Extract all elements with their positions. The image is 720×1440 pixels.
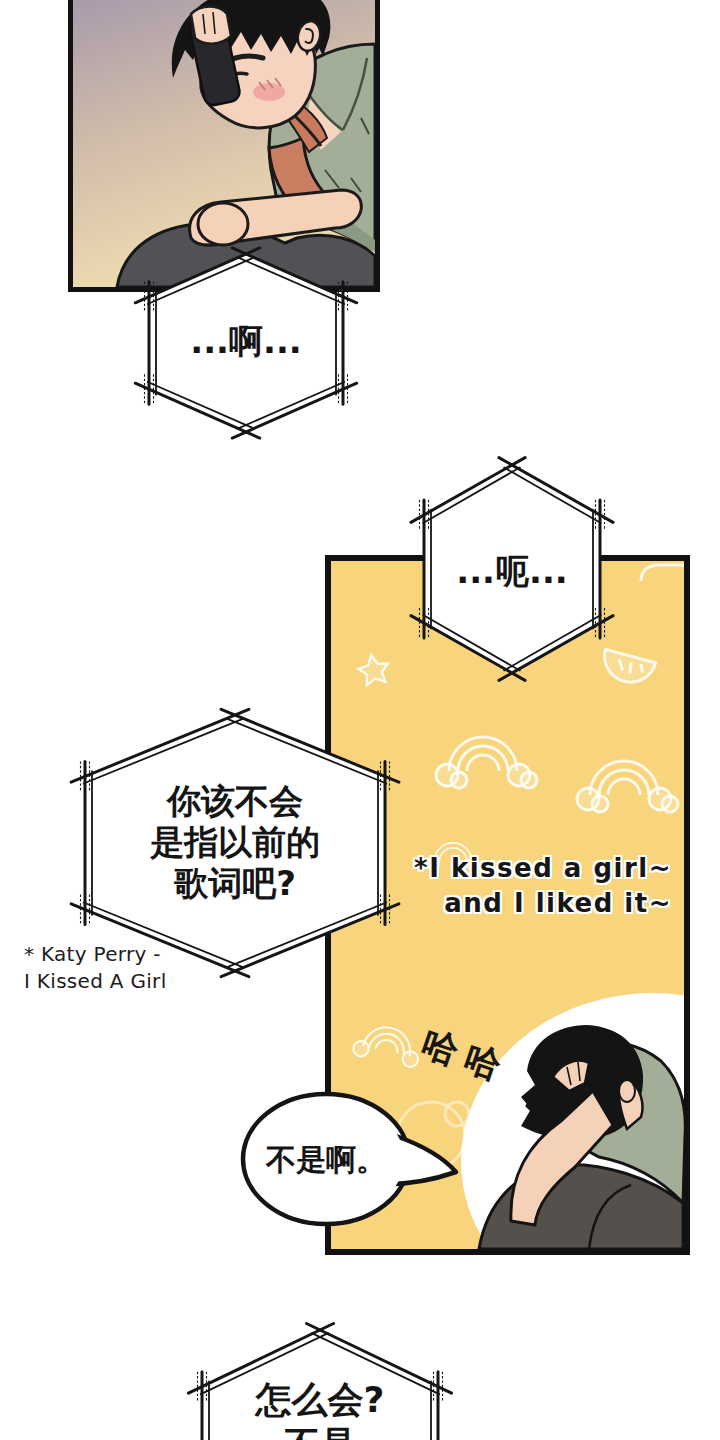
bubble1-text: ...啊... bbox=[146, 321, 346, 362]
bubble4-text: 不是啊。 bbox=[246, 1142, 406, 1178]
bubble3-text: 你该不会 是指以前的 歌词吧? bbox=[85, 781, 385, 904]
bubble3-line-2: 是指以前的 bbox=[85, 822, 385, 863]
bubble5-line-2: 不是 bbox=[200, 1422, 440, 1440]
bubble3-line-1: 你该不会 bbox=[85, 781, 385, 822]
lyrics-line-2: and I liked it~ bbox=[414, 886, 672, 921]
comic-panel-top bbox=[68, 0, 380, 292]
ear bbox=[619, 1080, 635, 1102]
lyrics-line-1: *I kissed a girl~ bbox=[414, 851, 672, 886]
comic-page: *I kissed a girl~ and I liked it~ 哈哈 * K… bbox=[0, 0, 720, 1440]
song-credit-note: * Katy Perry - I Kissed A Girl bbox=[24, 941, 167, 995]
note-line-2: I Kissed A Girl bbox=[24, 968, 167, 995]
bubble5-text: 怎么会? 不是 bbox=[200, 1377, 440, 1440]
hand bbox=[191, 7, 231, 44]
man-on-phone-illustration bbox=[73, 0, 375, 287]
bubble5-line-1: 怎么会? bbox=[200, 1377, 440, 1422]
note-line-1: * Katy Perry - bbox=[24, 941, 167, 968]
fist bbox=[198, 203, 248, 245]
bubble3-line-3: 歌词吧? bbox=[85, 863, 385, 904]
bubble2-text: ...呃... bbox=[412, 551, 612, 592]
song-lyrics-text: *I kissed a girl~ and I liked it~ bbox=[414, 851, 672, 921]
